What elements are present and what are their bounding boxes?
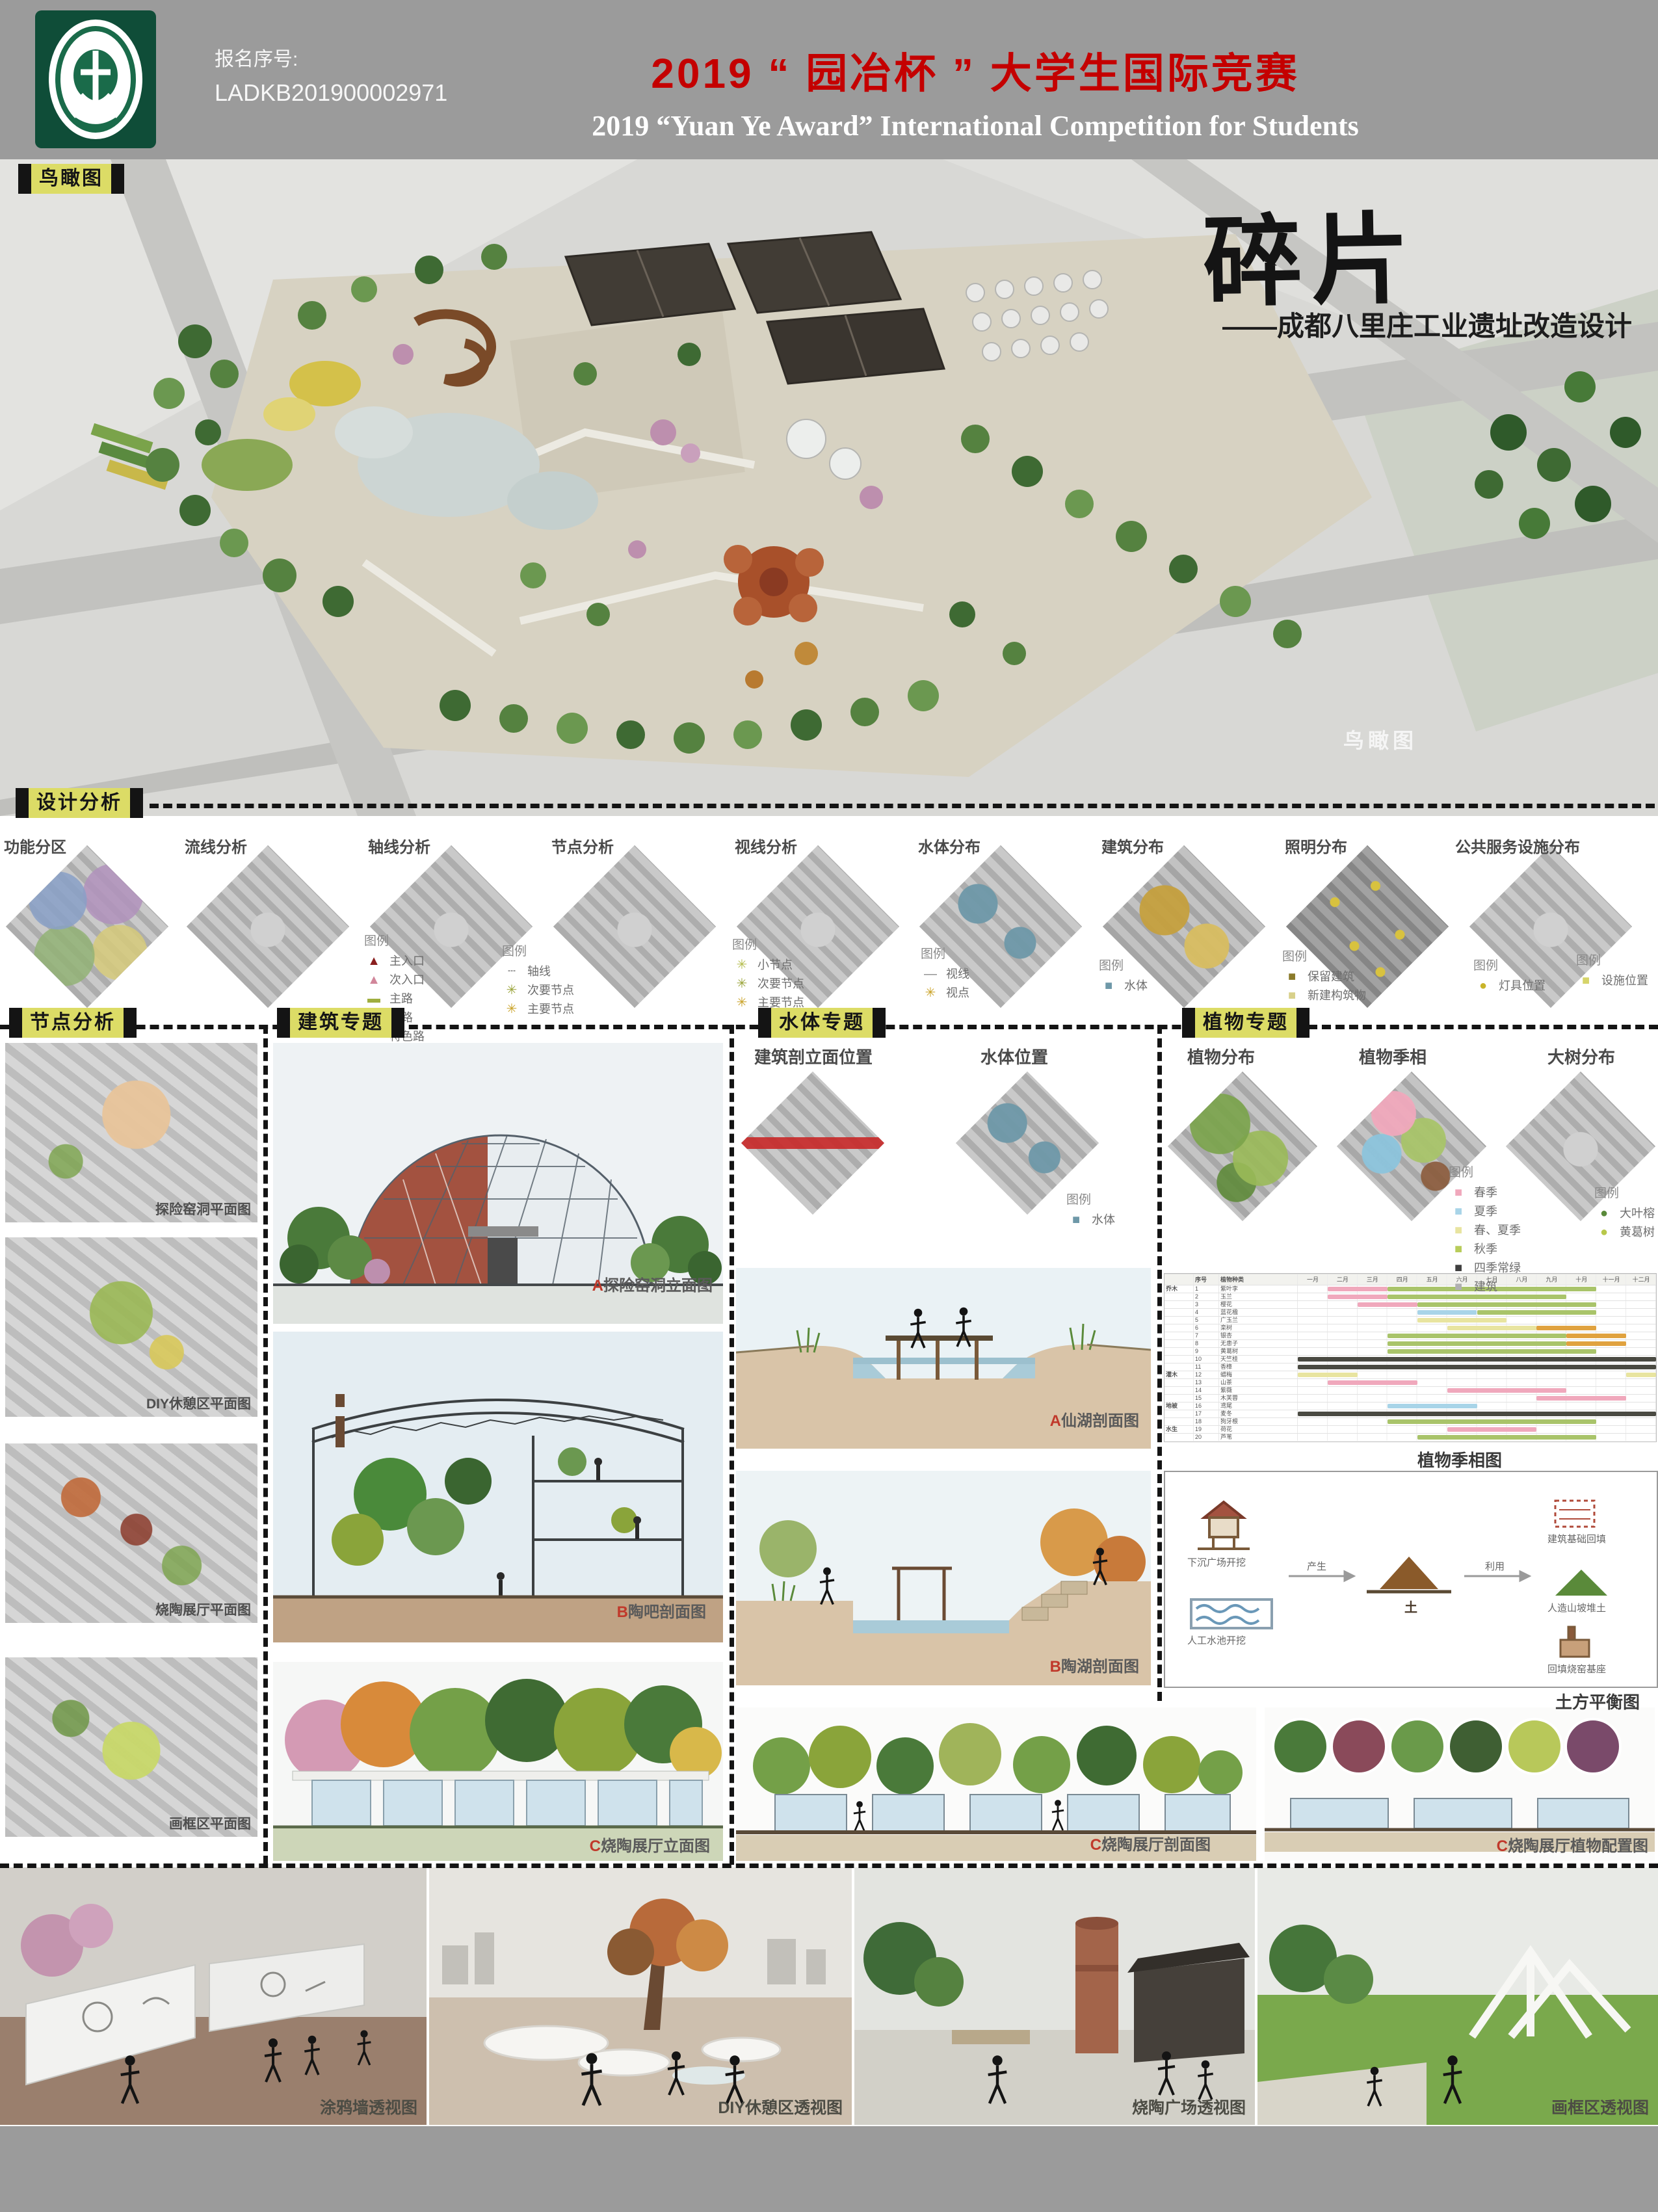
- earthwork-label-plaza-dig: 下沉广场开挖: [1187, 1555, 1246, 1569]
- calendar-cell: 18: [1194, 1418, 1219, 1425]
- plan-label-3: 节点分析: [551, 834, 614, 857]
- plants-plan-label-season: 植物季相: [1359, 1044, 1427, 1068]
- legend-swatch: ▬: [364, 990, 384, 1008]
- legend-swatch: ●: [1594, 1223, 1614, 1242]
- legend-item: ■四季常绿: [1449, 1259, 1521, 1278]
- calendar-bar-track: [1298, 1426, 1656, 1433]
- calendar-cell: [1165, 1395, 1194, 1402]
- calendar-season-bar: [1566, 1341, 1626, 1346]
- plants-plan-label-distribution: 植物分布: [1187, 1044, 1255, 1068]
- calendar-row: 乔木1紫叶李: [1165, 1285, 1656, 1293]
- legend-swatch: ✳: [502, 1000, 521, 1019]
- legend-item: ✳次要节点: [732, 975, 804, 994]
- calendar-cell: [1165, 1410, 1194, 1417]
- kiln-hall-section-caption: C烧陶展厅剖面图: [1090, 1832, 1211, 1854]
- legend-title: 图例: [921, 944, 969, 962]
- calendar-season-bar: [1298, 1412, 1656, 1416]
- dome-elevation-render: A探险窑洞立面图: [273, 1043, 723, 1324]
- calendar-cell: [1165, 1317, 1194, 1324]
- calendar-bar-track: [1298, 1418, 1656, 1425]
- legend-item: ✳小节点: [732, 956, 804, 975]
- calendar-cell: 10: [1194, 1356, 1219, 1363]
- calendar-cell: 20: [1194, 1434, 1219, 1441]
- calendar-cell: 16: [1194, 1402, 1219, 1410]
- calendar-cell: 2: [1194, 1293, 1219, 1300]
- plan-label-0: 功能分区: [4, 834, 66, 857]
- calendar-bar-track: [1298, 1317, 1656, 1324]
- calendar-cell: [1165, 1356, 1194, 1363]
- footer-bar: [0, 2126, 1658, 2212]
- calendar-row: 2玉兰: [1165, 1293, 1656, 1300]
- calendar-cell: 地被: [1165, 1402, 1194, 1410]
- calendar-cell: [1165, 1301, 1194, 1308]
- xianhu-section-caption: A仙湖剖面图: [1050, 1408, 1139, 1430]
- plan-label-6: 建筑分布: [1101, 834, 1164, 857]
- analysis-plan-nodes: [553, 845, 716, 1008]
- earthwork-label-kiln-base-fill: 回填烧窑基座: [1547, 1662, 1606, 1676]
- kiln-hall-elevation-render: C烧陶展厅立面图: [273, 1662, 723, 1861]
- legend-item: ●黄葛树: [1594, 1223, 1655, 1242]
- legend-title: 图例: [364, 931, 425, 949]
- calendar-cell: 狗牙根: [1219, 1418, 1298, 1425]
- calendar-season-bar: [1626, 1373, 1656, 1377]
- calendar-cell: 7: [1194, 1332, 1219, 1339]
- legend-item: ■保留建筑: [1282, 968, 1366, 986]
- legend-text: 大叶榕: [1620, 1205, 1655, 1222]
- legend-item: ■秋季: [1449, 1240, 1521, 1259]
- calendar-cell: 17: [1194, 1410, 1219, 1417]
- node-plan-4: 画框区平面图: [5, 1657, 257, 1837]
- calendar-season-bar: [1328, 1380, 1417, 1385]
- legend-item: ■水体: [1066, 1211, 1115, 1230]
- calendar-month-label: 三月: [1358, 1274, 1388, 1285]
- calendar-season-bar: [1388, 1349, 1596, 1354]
- calendar-season-bar: [1417, 1310, 1477, 1315]
- legend-swatch: ●: [1594, 1204, 1614, 1223]
- legend-text: 次入口: [389, 971, 425, 988]
- calendar-cell: 6: [1194, 1324, 1219, 1332]
- competition-title-cn: 2019 “ 园冶杯 ” 大学生国际竞赛: [520, 40, 1430, 100]
- taohu-section-caption: B陶湖剖面图: [1050, 1653, 1139, 1676]
- legend-item: ■春季: [1449, 1183, 1521, 1202]
- calendar-cell: 银杏: [1219, 1332, 1298, 1339]
- calendar-cell: 15: [1194, 1395, 1219, 1402]
- perspective-picture-frame-area: 画框区透视图: [1257, 1867, 1658, 2125]
- calendar-season-bar: [1477, 1310, 1597, 1315]
- legend-swatch: ■: [1449, 1240, 1468, 1259]
- legend-big-trees: 图例●大叶榕●黄葛树: [1594, 1183, 1655, 1242]
- calendar-season-bar: [1328, 1287, 1388, 1291]
- earthwork-label-hill-fill: 人造山坡堆土: [1547, 1601, 1606, 1614]
- calendar-cell: 14: [1194, 1387, 1219, 1394]
- legend-swatch: ●: [1473, 977, 1493, 995]
- calendar-cell: 山茶: [1219, 1379, 1298, 1386]
- calendar-row: 8无患子: [1165, 1339, 1656, 1347]
- column-divider-3: [1157, 1025, 1162, 1701]
- calendar-season-bar: [1447, 1388, 1567, 1393]
- aerial-caption: 鸟瞰图: [1343, 724, 1417, 754]
- calendar-season-bar: [1328, 1295, 1388, 1299]
- earthwork-label-pool-dig: 人工水池开挖: [1187, 1633, 1246, 1647]
- node-plan-3-caption: 烧陶展厅平面图: [155, 1600, 251, 1619]
- calendar-cell: [1165, 1274, 1194, 1285]
- legend-text: 视线: [946, 966, 969, 982]
- calendar-cell: 序号: [1194, 1274, 1219, 1285]
- legend-swatch: ┄: [502, 962, 521, 981]
- perspective-kiln-plaza: 烧陶广场透视图: [854, 1867, 1255, 2125]
- node-plan-3: 烧陶展厅平面图: [5, 1443, 257, 1623]
- plants-plan-label-big-trees: 大树分布: [1547, 1044, 1615, 1068]
- calendar-season-bar: [1566, 1334, 1626, 1338]
- perspective-graffiti-caption: 涂鸦墙透视图: [320, 2095, 417, 2118]
- legend-title: 图例: [1282, 947, 1366, 964]
- legend-text: 水体: [1124, 977, 1148, 994]
- calendar-cell: 芦苇: [1219, 1434, 1298, 1441]
- calendar-cell: 无患子: [1219, 1340, 1298, 1347]
- calendar-bar-track: [1298, 1371, 1656, 1378]
- calendar-row: 14紫薇: [1165, 1386, 1656, 1394]
- calendar-row: 5广玉兰: [1165, 1316, 1656, 1324]
- node-plan-2-caption: DIY休憩区平面图: [146, 1393, 251, 1413]
- legend-title: 图例: [732, 935, 804, 953]
- calendar-season-bar: [1536, 1326, 1596, 1330]
- calendar-cell: [1165, 1363, 1194, 1371]
- calendar-bar-track: [1298, 1410, 1656, 1417]
- taohu-section-render: B陶湖剖面图: [736, 1471, 1151, 1685]
- calendar-month-label: 五月: [1417, 1274, 1447, 1285]
- legend-lighting: 图例●灯具位置: [1473, 956, 1546, 995]
- calendar-season-bar: [1417, 1318, 1507, 1323]
- legend-title: 图例: [1449, 1163, 1521, 1180]
- kiln-hall-section-render: C烧陶展厅剖面图: [736, 1707, 1256, 1861]
- legend-axis: 图例┄轴线✳次要节点✳主要节点: [502, 941, 574, 1019]
- competition-title-en: 2019 “Yuan Ye Award” International Compe…: [455, 109, 1495, 142]
- node-plan-4-caption: 画框区平面图: [169, 1813, 251, 1833]
- calendar-bar-track: [1298, 1363, 1656, 1371]
- calendar-bar-track: [1298, 1348, 1656, 1355]
- calendar-month-label: 一月: [1298, 1274, 1328, 1285]
- legend-swatch: ✳: [921, 984, 940, 1003]
- legend-text: 黄葛树: [1620, 1224, 1655, 1241]
- calendar-bar-track: [1298, 1434, 1656, 1441]
- water-section-location-plan: [741, 1072, 884, 1215]
- legend-item: ▲次入口: [364, 971, 425, 990]
- kiln-hall-elevation-caption: C烧陶展厅立面图: [590, 1833, 710, 1856]
- calendar-month-label: 十一月: [1596, 1274, 1626, 1285]
- calendar-season-bar: [1298, 1373, 1358, 1377]
- calendar-cell: 木芙蓉: [1219, 1395, 1298, 1402]
- calendar-cell: 植物种类: [1219, 1274, 1298, 1285]
- plants-tag: 植物专题: [1182, 1008, 1309, 1038]
- calendar-cell: 广玉兰: [1219, 1317, 1298, 1324]
- plan-label-4: 视线分析: [735, 834, 797, 857]
- calendar-cell: 5: [1194, 1317, 1219, 1324]
- registration-label: 报名序号:: [215, 43, 298, 72]
- legend-swatch: ▲: [364, 952, 384, 971]
- dome-elevation-caption: A探险窑洞立面图: [592, 1272, 713, 1295]
- legend-text: 次要节点: [527, 982, 574, 999]
- architecture-tag: 建筑专题: [277, 1008, 404, 1038]
- calendar-cell: [1165, 1387, 1194, 1394]
- calendar-cell: 12: [1194, 1371, 1219, 1378]
- kiln-hall-planting-render: C烧陶展厅植物配置图: [1265, 1707, 1655, 1861]
- calendar-cell: 8: [1194, 1340, 1219, 1347]
- legend-text: 四季常绿: [1474, 1259, 1521, 1276]
- calendar-cell: [1165, 1293, 1194, 1300]
- calendar-cell: 麦冬: [1219, 1410, 1298, 1417]
- calendar-cell: 樱花: [1219, 1301, 1298, 1308]
- legend-water-location: 图例■水体: [1066, 1190, 1115, 1230]
- calendar-month-label: 四月: [1388, 1274, 1417, 1285]
- calendar-row: 地被16鸢尾: [1165, 1402, 1656, 1410]
- registration-number: LADKB201900002971: [215, 79, 447, 107]
- legend-facilities: 图例■设施位置: [1576, 951, 1648, 990]
- legend-text: 主路: [389, 990, 413, 1007]
- calendar-cell: 紫叶李: [1219, 1285, 1298, 1293]
- calendar-cell: 香樟: [1219, 1363, 1298, 1371]
- legend-text: 新建构筑物: [1308, 987, 1366, 1004]
- calendar-cell: 3: [1194, 1301, 1219, 1308]
- calendar-bar-track: [1298, 1395, 1656, 1402]
- legend-item: ■设施位置: [1576, 971, 1648, 990]
- water-plan-label-section-location: 建筑剖立面位置: [754, 1044, 873, 1068]
- calendar-row: 11香樟: [1165, 1363, 1656, 1371]
- analysis-plan-circulation: [187, 845, 349, 1008]
- plant-season-calendar-caption: 植物季相图: [1417, 1447, 1502, 1471]
- legend-swatch: ✳: [502, 981, 521, 1000]
- calendar-season-bar: [1298, 1365, 1656, 1369]
- calendar-row: 序号植物种类一月二月三月四月五月六月七月八月九月十月十一月十二月: [1165, 1274, 1656, 1285]
- pottery-bar-section-caption: B陶吧剖面图: [617, 1599, 706, 1622]
- legend-title: 图例: [1066, 1190, 1115, 1207]
- legend-swatch: ■: [1449, 1183, 1468, 1202]
- plant-season-calendar: 序号植物种类一月二月三月四月五月六月七月八月九月十月十一月十二月乔木1紫叶李2玉…: [1164, 1273, 1657, 1442]
- calendar-row: 3樱花: [1165, 1300, 1656, 1308]
- legend-swatch: ■: [1449, 1202, 1468, 1221]
- legend-text: 视点: [946, 984, 969, 1001]
- calendar-cell: 13: [1194, 1379, 1219, 1386]
- calendar-row: 4蓝花楹: [1165, 1308, 1656, 1316]
- calendar-season-bar: [1388, 1334, 1567, 1338]
- calendar-cell: 蜡梅: [1219, 1371, 1298, 1378]
- earthwork-balance-diagram: 下沉广场开挖 人工水池开挖 产生 土 利用 建筑基础回填 人造山坡堆土 回填烧窑…: [1164, 1471, 1658, 1688]
- calendar-cell: 19: [1194, 1426, 1219, 1433]
- calendar-row: 18狗牙根: [1165, 1417, 1656, 1425]
- competition-logo: [35, 10, 156, 148]
- legend-swatch: ■: [1449, 1221, 1468, 1240]
- calendar-row: 水生19荷花: [1165, 1425, 1656, 1433]
- calendar-bar-track: [1298, 1340, 1656, 1347]
- water-plan-label-water-location: 水体位置: [980, 1044, 1048, 1068]
- node-plan-1: 探险窑洞平面图: [5, 1043, 257, 1222]
- calendar-cell: 9: [1194, 1348, 1219, 1355]
- legend-text: 夏季: [1474, 1203, 1497, 1220]
- legend-swatch: ✳: [732, 994, 752, 1012]
- calendar-row: 9黄葛树: [1165, 1347, 1656, 1355]
- plan-label-8: 公共服务设施分布: [1455, 834, 1580, 857]
- legend-title: 图例: [502, 941, 574, 959]
- legend-text: 次要节点: [757, 975, 804, 992]
- legend-swatch: ▲: [364, 971, 384, 990]
- calendar-season-bar: [1388, 1341, 1567, 1346]
- legend-sightlines: 图例—视线✳视点: [921, 944, 969, 1003]
- legend-item: ✳视点: [921, 984, 969, 1003]
- legend-text: 主要节点: [527, 1001, 574, 1018]
- calendar-month-label: 十月: [1566, 1274, 1596, 1285]
- legend-swatch: ✳: [732, 956, 752, 975]
- perspective-diy-rest-area: DIY休憩区透视图: [429, 1867, 852, 2125]
- calendar-cell: 黄葛树: [1219, 1348, 1298, 1355]
- calendar-cell: 天竺桂: [1219, 1356, 1298, 1363]
- calendar-month-label: 九月: [1536, 1274, 1566, 1285]
- legend-text: 建筑: [1474, 1278, 1497, 1295]
- legend-text: 轴线: [527, 963, 551, 980]
- calendar-cell: 鸢尾: [1219, 1402, 1298, 1410]
- calendar-bar-track: [1298, 1309, 1656, 1316]
- legend-item: ✳主要节点: [502, 1000, 574, 1019]
- legend-buildings: 图例■保留建筑■新建构筑物: [1282, 947, 1366, 1005]
- earthwork-label-produce: 产生: [1307, 1559, 1326, 1573]
- analysis-plan-function-zoning: [6, 845, 168, 1008]
- legend-nodes: 图例✳小节点✳次要节点✳主要节点: [732, 935, 804, 1012]
- calendar-cell: 蓝花楹: [1219, 1309, 1298, 1316]
- calendar-cell: 4: [1194, 1309, 1219, 1316]
- calendar-season-bar: [1447, 1326, 1537, 1330]
- plan-label-1: 流线分析: [185, 834, 247, 857]
- design-analysis-divider: [150, 804, 1655, 808]
- legend-item: ■建筑: [1449, 1278, 1521, 1297]
- legend-item: ✳次要节点: [502, 981, 574, 1000]
- calendar-cell: 玉兰: [1219, 1293, 1298, 1300]
- calendar-season-bar: [1447, 1427, 1537, 1432]
- legend-item: ●灯具位置: [1473, 977, 1546, 995]
- earthwork-label-soil: 土: [1404, 1597, 1417, 1616]
- calendar-row: 15木芙蓉: [1165, 1394, 1656, 1402]
- legend-swatch: —: [921, 965, 940, 984]
- pottery-bar-section-render: B陶吧剖面图: [273, 1332, 723, 1642]
- legend-item: —视线: [921, 965, 969, 984]
- competition-board: 报名序号: LADKB201900002971 2019 “ 园冶杯 ” 大学生…: [0, 0, 1658, 2212]
- plan-label-5: 水体分布: [918, 834, 980, 857]
- legend-item: ▬主路: [364, 990, 425, 1008]
- aerial-tag: 鸟瞰图: [18, 164, 124, 194]
- legend-title: 图例: [1576, 951, 1648, 968]
- legend-item: ■夏季: [1449, 1202, 1521, 1221]
- earthwork-label-use: 利用: [1485, 1559, 1505, 1573]
- project-subtitle: ——成都八里庄工业遗址改造设计: [1222, 304, 1632, 344]
- calendar-season-bar: [1388, 1419, 1596, 1424]
- legend-text: 春、夏季: [1474, 1222, 1521, 1239]
- calendar-cell: 1: [1194, 1285, 1219, 1293]
- node-plan-1-caption: 探险窑洞平面图: [155, 1199, 251, 1218]
- column-divider-2: [730, 1025, 734, 1865]
- legend-swatch: ■: [1449, 1259, 1468, 1278]
- perspective-diy-caption: DIY休憩区透视图: [718, 2095, 843, 2118]
- perspective-divider: [0, 1863, 1658, 1868]
- legend-item: ▲主入口: [364, 952, 425, 971]
- calendar-cell: 栾树: [1219, 1324, 1298, 1332]
- earthwork-caption: 土方平衡图: [1555, 1689, 1640, 1713]
- water-tag: 水体专题: [758, 1008, 886, 1038]
- legend-swatch: ✳: [732, 975, 752, 994]
- calendar-season-bar: [1417, 1435, 1597, 1440]
- calendar-cell: [1165, 1348, 1194, 1355]
- legend-swatch: ■: [1576, 971, 1596, 990]
- legend-water: 图例■水体: [1099, 956, 1148, 995]
- legend-swatch: ■: [1066, 1211, 1086, 1230]
- calendar-cell: 灌木: [1165, 1371, 1194, 1378]
- calendar-season-bar: [1536, 1396, 1626, 1401]
- legend-text: 保留建筑: [1308, 968, 1354, 985]
- calendar-cell: [1165, 1332, 1194, 1339]
- perspective-graffiti-wall: 涂鸦墙透视图: [0, 1867, 427, 2125]
- legend-item: ■水体: [1099, 977, 1148, 995]
- legend-title: 图例: [1594, 1183, 1655, 1201]
- calendar-season-bar: [1417, 1302, 1597, 1307]
- calendar-cell: [1165, 1379, 1194, 1386]
- legend-item: ┄轴线: [502, 962, 574, 981]
- calendar-row: 20芦苇: [1165, 1433, 1656, 1441]
- legend-swatch: ■: [1282, 968, 1302, 986]
- legend-swatch: ■: [1282, 986, 1302, 1005]
- calendar-row: 6栾树: [1165, 1324, 1656, 1332]
- calendar-season-bar: [1388, 1404, 1477, 1408]
- calendar-cell: [1165, 1434, 1194, 1441]
- legend-swatch: ■: [1449, 1278, 1468, 1297]
- calendar-month-label: 二月: [1328, 1274, 1358, 1285]
- perspective-kiln-plaza-caption: 烧陶广场透视图: [1132, 2095, 1246, 2118]
- calendar-bar-track: [1298, 1332, 1656, 1339]
- legend-item: ■春、夏季: [1449, 1221, 1521, 1240]
- design-analysis-tag: 设计分析: [16, 788, 143, 818]
- calendar-month-label: 十二月: [1626, 1274, 1656, 1285]
- earthwork-label-foundation-fill: 建筑基础回填: [1547, 1532, 1606, 1546]
- calendar-cell: 水生: [1165, 1426, 1194, 1433]
- legend-text: 秋季: [1474, 1241, 1497, 1257]
- calendar-bar-track: [1298, 1387, 1656, 1394]
- calendar-cell: 11: [1194, 1363, 1219, 1371]
- plan-label-2: 轴线分析: [368, 834, 430, 857]
- calendar-row: 10天竺桂: [1165, 1355, 1656, 1363]
- header-bar: 报名序号: LADKB201900002971 2019 “ 园冶杯 ” 大学生…: [0, 0, 1658, 159]
- calendar-season-bar: [1298, 1357, 1656, 1362]
- calendar-cell: [1165, 1340, 1194, 1347]
- calendar-cell: [1165, 1324, 1194, 1332]
- calendar-row: 17麦冬: [1165, 1410, 1656, 1417]
- node-plan-2: DIY休憩区平面图: [5, 1237, 257, 1417]
- legend-item: ●大叶榕: [1594, 1204, 1655, 1223]
- calendar-bar-track: [1298, 1301, 1656, 1308]
- legend-item: ■新建构筑物: [1282, 986, 1366, 1005]
- legend-text: 灯具位置: [1499, 977, 1546, 994]
- calendar-bar-track: [1298, 1356, 1656, 1363]
- calendar-bar-track: [1298, 1402, 1656, 1410]
- perspective-picture-frame-caption: 画框区透视图: [1551, 2095, 1649, 2118]
- calendar-row: 7银杏: [1165, 1332, 1656, 1339]
- calendar-bar-track: [1298, 1379, 1656, 1386]
- legend-text: 主入口: [389, 953, 425, 969]
- plan-label-7: 照明分布: [1285, 834, 1347, 857]
- legend-text: 设施位置: [1601, 972, 1648, 989]
- calendar-cell: 乔木: [1165, 1285, 1194, 1293]
- calendar-row: 13山茶: [1165, 1378, 1656, 1386]
- xianhu-section-render: A仙湖剖面图: [736, 1268, 1151, 1449]
- node-analysis-tag: 节点分析: [9, 1008, 137, 1038]
- calendar-row: 灌木12蜡梅: [1165, 1371, 1656, 1378]
- legend-text: 水体: [1092, 1211, 1115, 1228]
- calendar-cell: 紫薇: [1219, 1387, 1298, 1394]
- legend-plant-season: 图例■春季■夏季■春、夏季■秋季■四季常绿■建筑: [1449, 1163, 1521, 1297]
